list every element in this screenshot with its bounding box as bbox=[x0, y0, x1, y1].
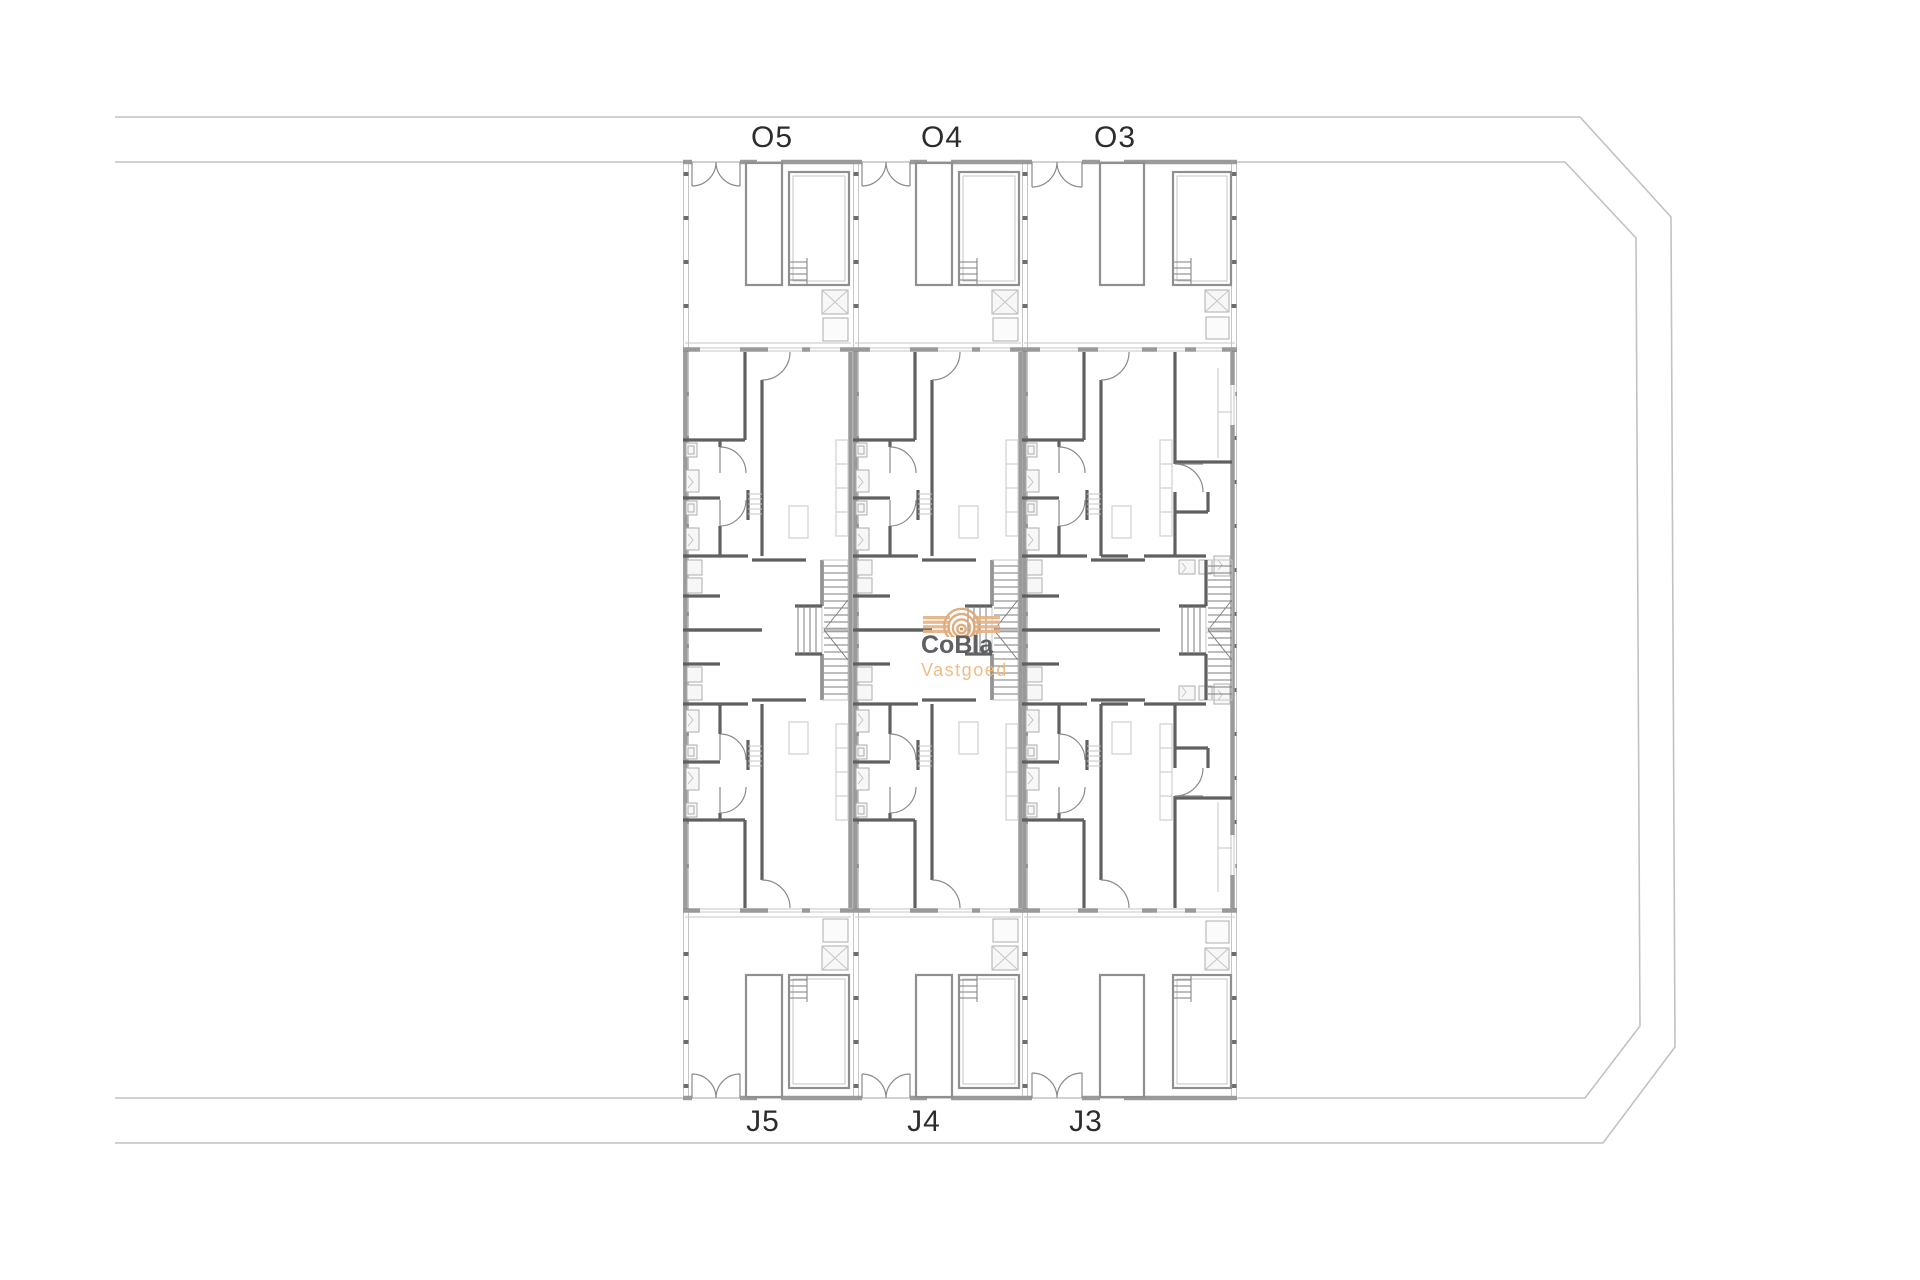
unit-j4-half bbox=[853, 628, 1023, 1098]
floor-plan-page: O5 O4 O3 J5 J4 J3 CoBla Vastgoed bbox=[0, 0, 1920, 1280]
unit-label-j3: J3 bbox=[1069, 1105, 1103, 1139]
unit-label-j4: J4 bbox=[907, 1105, 941, 1139]
unit-label-j5: J5 bbox=[746, 1105, 780, 1139]
lower-units-mirrored bbox=[683, 628, 1237, 1098]
watermark: CoBla Vastgoed bbox=[921, 601, 1031, 679]
upper-units bbox=[683, 162, 1237, 632]
unit-j3-half bbox=[1022, 628, 1237, 1098]
watermark-subtitle-text: Vastgoed bbox=[921, 661, 1031, 679]
watermark-brand-text: CoBla bbox=[921, 633, 1031, 658]
unit-label-o4: O4 bbox=[921, 121, 963, 155]
unit-label-o5: O5 bbox=[751, 121, 793, 155]
unit-o4-half bbox=[853, 162, 1023, 632]
unit-o3-half bbox=[1022, 162, 1237, 632]
unit-o5-half bbox=[683, 162, 853, 632]
unit-label-o3: O3 bbox=[1094, 121, 1136, 155]
unit-j5-half bbox=[683, 628, 853, 1098]
